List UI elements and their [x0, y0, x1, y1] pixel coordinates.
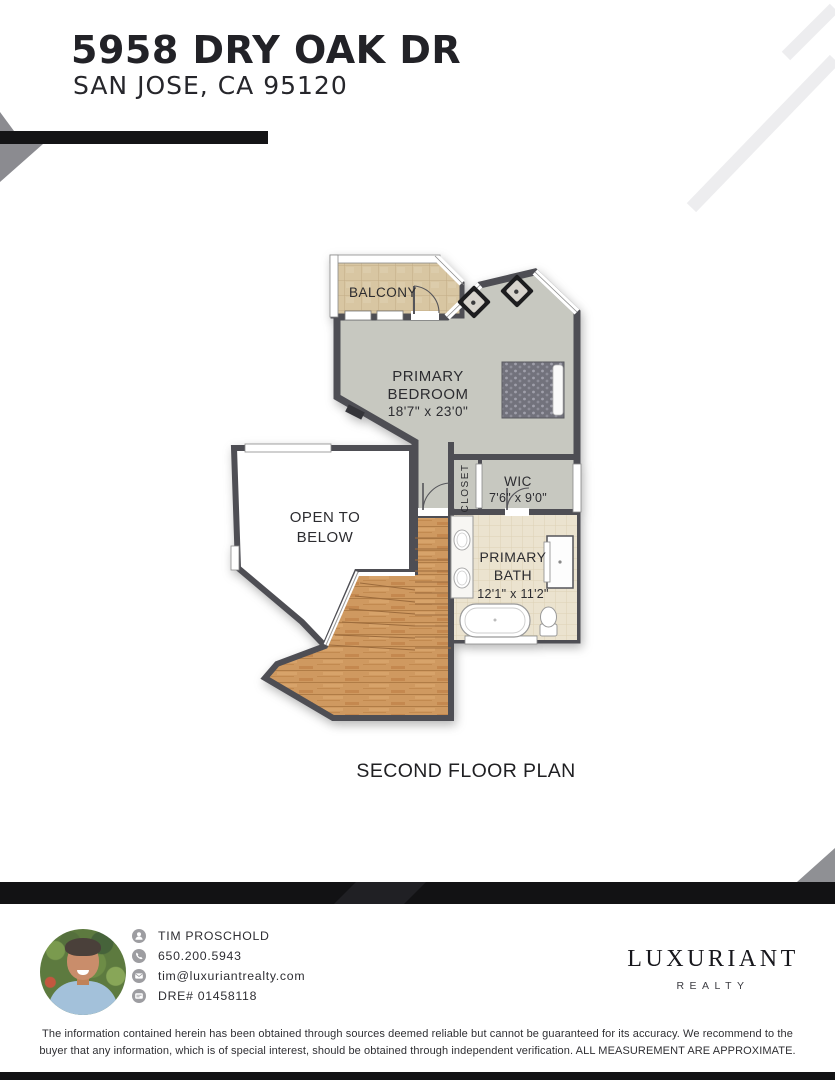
bathtub [460, 604, 530, 637]
brand-logo: LUXURIANT REALTY [598, 946, 828, 992]
agent-email: tim@luxuriantrealty.com [158, 969, 305, 983]
bedroom-label-1: PRIMARY [392, 368, 464, 385]
bedroom-dimensions: 18'7" x 23'0" [388, 404, 469, 419]
bath-label-2: BATH [494, 567, 532, 583]
bath-dimensions: 12'1" x 11'2" [477, 587, 549, 601]
shower [544, 536, 573, 588]
person-icon [132, 929, 146, 943]
avatar-hair [65, 938, 101, 956]
agent-email-row: tim@luxuriantrealty.com [132, 969, 305, 983]
disclaimer-line-1: The information contained herein has bee… [22, 1026, 813, 1043]
vanity-sinks [451, 516, 473, 598]
address-subtitle: SAN JOSE, CA 95120 [73, 71, 348, 100]
bed [502, 362, 564, 418]
floor-plan: BALCONY PRIMARY BEDROOM 18'7" x 23'0" OP… [225, 250, 585, 740]
agent-contact-block: TIM PROSCHOLD 650.200.5943 tim@luxuriant… [132, 929, 305, 1009]
agent-phone: 650.200.5943 [158, 949, 242, 963]
open-to-below-label-2: BELOW [297, 529, 354, 546]
license-badge-icon [132, 989, 146, 1003]
brand-name: LUXURIANT [598, 946, 828, 973]
corner-stripe-long [687, 55, 835, 212]
wic-dimensions: 7'6" x 9'0" [489, 491, 547, 505]
agent-dre-row: DRE# 01458118 [132, 989, 305, 1003]
footer-gray-triangle [797, 848, 835, 882]
email-icon [132, 969, 146, 983]
disclaimer-line-2: buyer that any information, which is of … [22, 1043, 813, 1060]
corner-stripe-short [782, 4, 835, 61]
header-gray-triangle [0, 144, 43, 182]
agent-name-row: TIM PROSCHOLD [132, 929, 305, 943]
footer-black-bar [0, 882, 835, 904]
wic-label: WIC [504, 474, 532, 489]
address-title: 5958 DRY OAK DR [71, 28, 461, 72]
header-gray-triangle-small [0, 112, 14, 131]
bath-label-1: PRIMARY [479, 549, 546, 565]
toilet [540, 607, 557, 636]
brand-tagline: REALTY [598, 980, 828, 992]
balcony-label: BALCONY [349, 285, 417, 300]
bottom-black-bar [0, 1072, 835, 1080]
agent-phone-row: 650.200.5943 [132, 949, 305, 963]
plan-caption: SECOND FLOOR PLAN [97, 760, 835, 783]
agent-name: TIM PROSCHOLD [158, 929, 270, 943]
phone-icon [132, 949, 146, 963]
closet-label: CLOSET [460, 463, 471, 512]
bedroom-label-2: BEDROOM [387, 386, 468, 403]
agent-dre: DRE# 01458118 [158, 989, 257, 1003]
open-to-below-label-1: OPEN TO [290, 509, 360, 526]
avatar-shirt [48, 981, 118, 1015]
disclaimer: The information contained herein has bee… [22, 1026, 813, 1059]
header-black-bar [0, 131, 268, 144]
agent-avatar [40, 929, 126, 1015]
flyer-page: 5958 DRY OAK DR SAN JOSE, CA 95120 [0, 0, 835, 1080]
